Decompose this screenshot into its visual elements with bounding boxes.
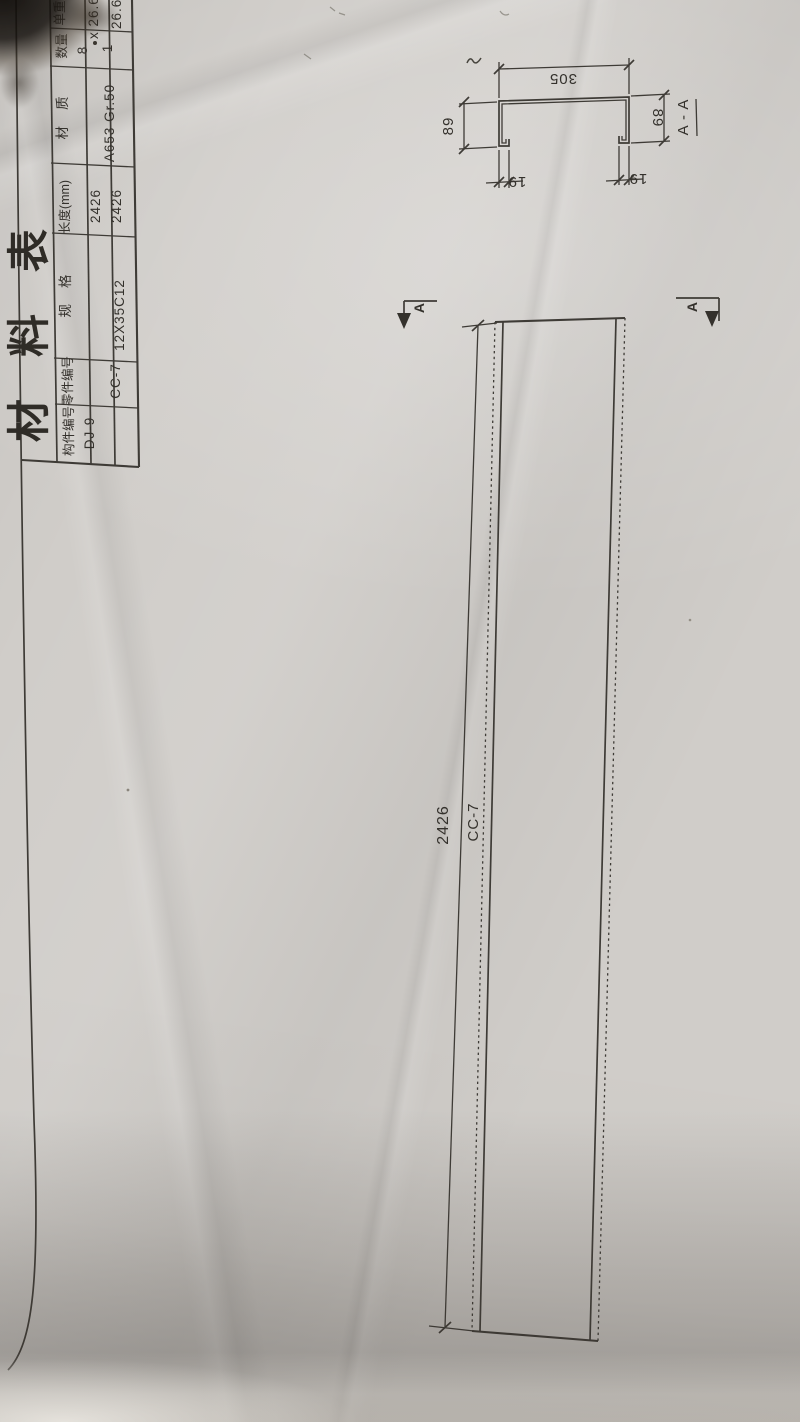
dimension-value: 89 — [649, 109, 666, 128]
dimension-tick — [459, 144, 469, 154]
table-cell: 12X35C12 — [112, 279, 127, 351]
table-grid-line — [51, 163, 135, 167]
part-edge — [590, 319, 616, 1340]
dimension-line — [606, 179, 643, 181]
paper-background — [0, 0, 800, 1422]
channel-profile-outer — [499, 97, 629, 146]
section-cut-marker-left: A — [397, 301, 437, 329]
part-hidden-edge — [598, 318, 625, 1341]
extension-line — [429, 1326, 474, 1331]
paper-crease — [0, 0, 800, 1422]
dimension-value: 305 — [549, 70, 577, 87]
dimension-tick — [459, 97, 469, 107]
extension-line — [459, 102, 497, 104]
part-drawing-cc7: 2426 CC-7 A A — [397, 298, 719, 1341]
dimension-tick — [504, 177, 514, 187]
extension-line — [459, 147, 497, 149]
table-cell: 2426 — [88, 189, 103, 223]
part-edge — [480, 322, 503, 1331]
part-edge — [472, 1331, 598, 1341]
engineering-drawing: 材 料 表 构件编号 零件编号 规格 长度(mm) 材质 数量 单重 DJ-9 … — [0, 0, 800, 1422]
dimension-tick — [614, 175, 624, 185]
dimension-tick — [439, 1322, 451, 1333]
dimension-tick — [494, 177, 504, 187]
length-dimension-value: 2426 — [435, 805, 452, 845]
section-cut-letter: A — [684, 302, 700, 312]
paper-curl-edge — [0, 1352, 800, 1422]
dimension-line — [486, 181, 523, 183]
table-bottom-border — [22, 460, 139, 467]
pencil-mark — [467, 58, 481, 63]
shadow-vignette — [0, 0, 800, 1422]
dimension-value: 19 — [629, 170, 648, 187]
table-grid-line — [54, 358, 137, 362]
paper-crease — [0, 0, 800, 1422]
table-grid-line — [55, 404, 138, 408]
dimension-line — [445, 326, 478, 1327]
dimension-tick — [472, 320, 484, 331]
dimension-tick — [624, 60, 634, 70]
drawing-photo: 材 料 表 构件编号 零件编号 规格 长度(mm) 材质 数量 单重 DJ-9 … — [0, 0, 800, 1422]
table-header: 规格 — [58, 259, 73, 318]
table-header: 零件编号 — [60, 356, 75, 406]
paper-crease — [0, 0, 800, 1422]
table-cell: 2426 — [109, 189, 124, 223]
extension-line — [462, 323, 497, 327]
extension-line — [631, 141, 670, 143]
table-grid-line — [52, 233, 136, 237]
dust-speck — [127, 789, 130, 792]
table-cell: DJ-9 — [82, 417, 97, 450]
pencil-mark — [500, 11, 509, 15]
dimension-value: 89 — [440, 117, 457, 136]
table-header: 构件编号 — [61, 406, 76, 456]
section-view-a-a: 305 89 89 19 — [440, 58, 697, 190]
part-edge — [495, 318, 625, 322]
dimension-tick — [624, 175, 634, 185]
section-label-underline — [696, 99, 697, 136]
dimension-tick — [659, 136, 669, 146]
section-cut-marker-right: A — [676, 298, 719, 327]
pencil-mark — [304, 54, 311, 59]
dust-speck — [689, 619, 692, 622]
corner-stain — [0, 0, 152, 116]
pencil-mark — [330, 7, 345, 15]
section-cut-letter: A — [411, 303, 427, 313]
extension-line — [631, 94, 670, 96]
dimension-value: 19 — [508, 173, 527, 190]
dimension-line — [499, 65, 629, 69]
channel-profile-inner — [502, 100, 626, 143]
dimension-tick — [494, 64, 504, 74]
table-cell: CC-7 — [108, 363, 123, 399]
dimension-tick — [659, 90, 669, 100]
part-label: CC-7 — [465, 802, 482, 841]
part-hidden-edge — [472, 322, 495, 1331]
table-header: 长度(mm) — [57, 180, 72, 234]
sheet-border-line — [8, 0, 36, 1370]
section-cut-flag — [705, 311, 719, 327]
section-cut-flag — [397, 313, 411, 329]
table-title: 材 料 表 — [6, 214, 54, 442]
section-label: A - A — [675, 99, 692, 136]
